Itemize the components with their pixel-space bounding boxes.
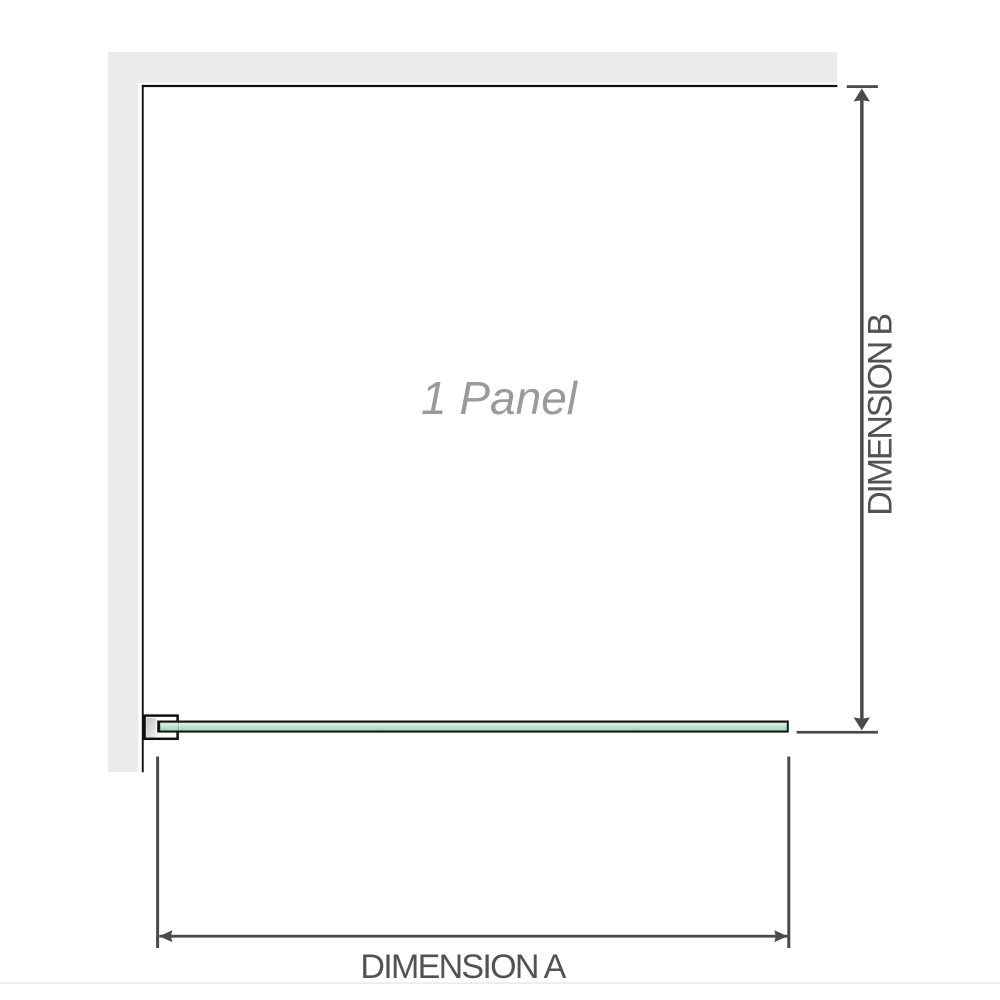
svg-text:1 Panel: 1 Panel xyxy=(421,372,579,424)
svg-text:DIMENSION B: DIMENSION B xyxy=(862,315,900,516)
svg-text:DIMENSION A: DIMENSION A xyxy=(360,948,566,986)
